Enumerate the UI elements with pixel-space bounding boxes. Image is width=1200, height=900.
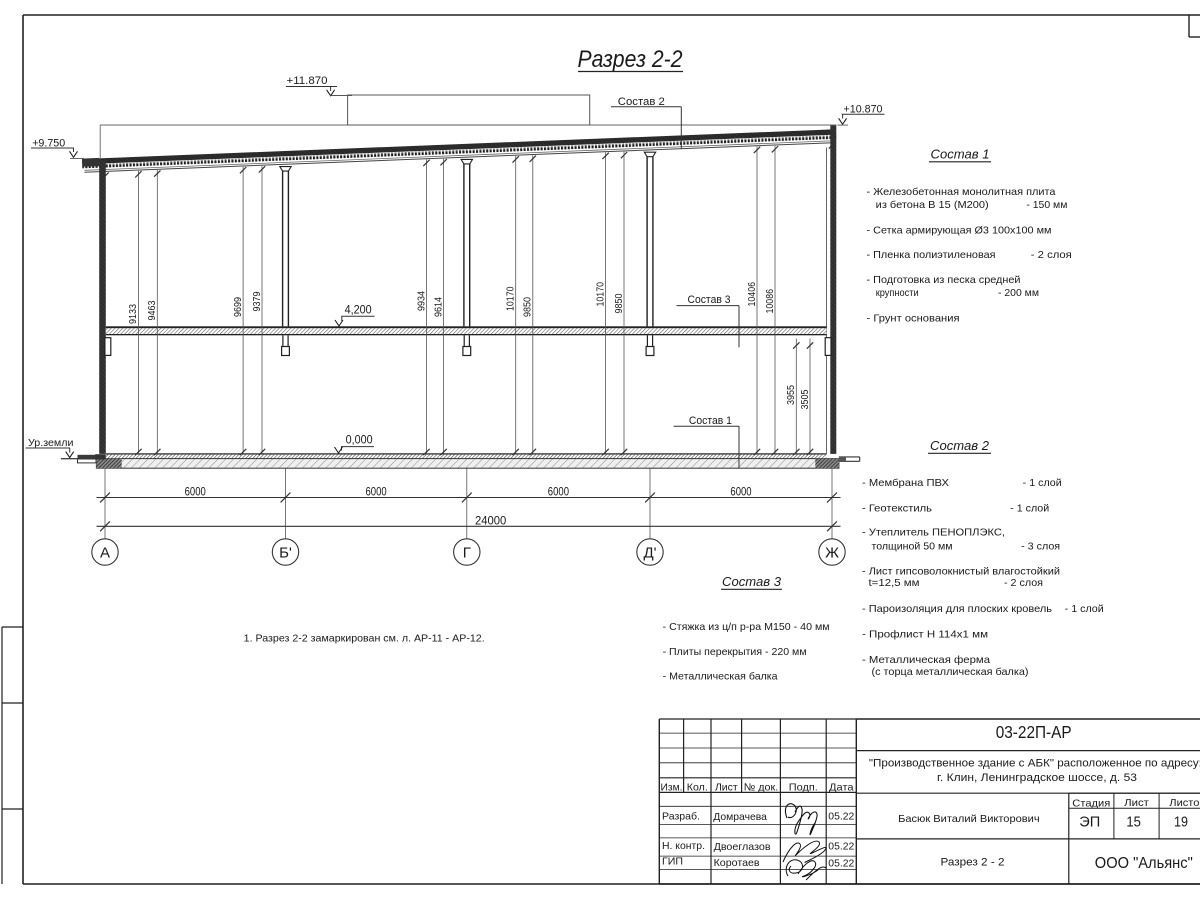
svg-text:9133: 9133 <box>127 304 139 324</box>
svg-text:Лист: Лист <box>1124 797 1149 809</box>
svg-text:- Пароизоляция для плоских кро: - Пароизоляция для плоских кровель <box>862 603 1053 615</box>
svg-text:№ док.: № док. <box>744 781 778 793</box>
svg-text:9699: 9699 <box>232 297 244 317</box>
svg-text:ООО "Альянс": ООО "Альянс" <box>1095 855 1193 872</box>
svg-text:- Лист гипсоволокнистый влагос: - Лист гипсоволокнистый влагостойкий <box>862 566 1060 578</box>
svg-text:- Металлическая балка: - Металлическая балка <box>663 671 778 683</box>
svg-text:Состав 3: Состав 3 <box>688 294 731 306</box>
svg-text:Состав 2: Состав 2 <box>930 439 989 453</box>
svg-text:Домрачева: Домрачева <box>713 811 767 823</box>
svg-text:15: 15 <box>1126 814 1141 831</box>
svg-text:"Производственное здание с АБК: "Производственное здание с АБК" располож… <box>869 758 1200 770</box>
svg-text:- Геотекстиль: - Геотекстиль <box>862 502 933 514</box>
svg-text:- 3 слоя: - 3 слоя <box>1021 540 1060 552</box>
svg-text:05.22: 05.22 <box>828 858 854 870</box>
svg-text:Стадия: Стадия <box>1072 798 1110 810</box>
svg-text:Подп.: Подп. <box>789 781 818 793</box>
svg-text:- 2 слоя: - 2 слоя <box>1004 577 1043 589</box>
svg-text:3505: 3505 <box>799 389 811 409</box>
svg-text:(с торца металлическая балка): (с торца металлическая балка) <box>872 666 1029 678</box>
svg-text:Состав 3: Состав 3 <box>722 575 781 589</box>
svg-text:Б': Б' <box>279 544 292 561</box>
svg-text:- 2 слоя: - 2 слоя <box>1031 249 1072 261</box>
svg-text:- Подготовка из песка средней: - Подготовка из песка средней <box>867 274 1021 286</box>
svg-text:Разрез 2 - 2: Разрез 2 - 2 <box>941 857 1005 869</box>
svg-text:24000: 24000 <box>475 516 506 528</box>
svg-text:t=12,5 мм: t=12,5 мм <box>869 577 920 589</box>
svg-text:- Сетка армирующая Ø3 100х100: - Сетка армирующая Ø3 100х100 мм <box>867 224 1052 236</box>
svg-text:Кол.: Кол. <box>687 781 708 793</box>
svg-text:- Плиты перекрытия - 220 мм: - Плиты перекрытия - 220 мм <box>663 646 807 658</box>
svg-text:Состав 2: Состав 2 <box>618 96 665 108</box>
svg-text:- Мембрана ПВХ: - Мембрана ПВХ <box>862 477 949 489</box>
svg-text:Ж: Ж <box>825 544 839 561</box>
svg-text:Разрез 2-2: Разрез 2-2 <box>578 46 683 73</box>
svg-text:ЭП: ЭП <box>1079 814 1100 831</box>
svg-text:9463: 9463 <box>146 300 158 320</box>
svg-text:6000: 6000 <box>548 486 569 498</box>
svg-text:- Пленка полиэтиленовая: - Пленка полиэтиленовая <box>867 249 996 261</box>
svg-text:05.22: 05.22 <box>828 811 854 823</box>
svg-text:1. Разрез 2-2 замаркирован см.: 1. Разрез 2-2 замаркирован см. л. АР-11 … <box>244 632 485 644</box>
svg-text:19: 19 <box>1174 814 1188 831</box>
svg-text:+11.870: +11.870 <box>287 75 328 87</box>
svg-text:Г: Г <box>463 544 471 561</box>
svg-text:- 1 слой: - 1 слой <box>1023 477 1062 489</box>
svg-text:Басюк Виталий Викторович: Басюк Виталий Викторович <box>898 813 1040 825</box>
svg-text:Н. контр.: Н. контр. <box>662 840 705 852</box>
svg-text:- Профлист Н 114х1 мм: - Профлист Н 114х1 мм <box>862 628 988 640</box>
svg-text:г. Клин, Ленинградское шоссе,: г. Клин, Ленинградское шоссе, д. 53 <box>937 772 1137 784</box>
svg-text:Состав 1: Состав 1 <box>931 148 990 162</box>
svg-text:9379: 9379 <box>251 291 263 311</box>
svg-text:9850: 9850 <box>613 293 625 313</box>
svg-text:03-22П-АР: 03-22П-АР <box>996 722 1072 742</box>
svg-text:6000: 6000 <box>366 486 387 498</box>
svg-text:крупности: крупности <box>876 287 919 299</box>
svg-text:10406: 10406 <box>746 282 758 307</box>
svg-text:Листов: Листов <box>1169 797 1200 809</box>
svg-text:Двоеглазов: Двоеглазов <box>714 841 771 853</box>
svg-text:из бетона В 15 (М200): из бетона В 15 (М200) <box>876 199 989 211</box>
svg-text:толщиной 50 мм: толщиной 50 мм <box>872 540 953 552</box>
svg-text:Коротаев: Коротаев <box>714 857 760 869</box>
svg-text:- 1 слой: - 1 слой <box>1010 502 1049 514</box>
svg-text:- Утеплитель ПЕНОПЛЭКС,: - Утеплитель ПЕНОПЛЭКС, <box>862 527 1005 539</box>
svg-text:4,200: 4,200 <box>345 305 372 317</box>
svg-text:Разраб.: Разраб. <box>662 811 700 823</box>
svg-text:Изм.: Изм. <box>661 781 683 793</box>
svg-text:10170: 10170 <box>594 282 606 307</box>
svg-text:6000: 6000 <box>730 486 751 498</box>
svg-text:6000: 6000 <box>185 486 206 498</box>
svg-text:9614: 9614 <box>432 297 444 317</box>
svg-text:9934: 9934 <box>415 291 427 311</box>
svg-text:Дата: Дата <box>829 781 854 793</box>
svg-text:10086: 10086 <box>764 289 776 314</box>
svg-text:- 200 мм: - 200 мм <box>998 287 1039 299</box>
svg-text:- Грунт основания: - Грунт основания <box>867 313 960 325</box>
svg-text:А: А <box>100 544 110 561</box>
svg-text:3955: 3955 <box>785 385 797 405</box>
svg-text:05.22: 05.22 <box>828 841 854 853</box>
svg-text:Д': Д' <box>643 544 656 561</box>
svg-text:- Стяжка из ц/п р-ра М150 - 40: - Стяжка из ц/п р-ра М150 - 40 мм <box>663 621 830 633</box>
svg-text:+10.870: +10.870 <box>844 103 883 115</box>
svg-text:10170: 10170 <box>505 286 517 311</box>
svg-text:- 150 мм: - 150 мм <box>1026 199 1067 211</box>
svg-text:- Металлическая ферма: - Металлическая ферма <box>862 654 990 666</box>
svg-text:Ур.земли: Ур.земли <box>28 437 74 449</box>
svg-text:Лист: Лист <box>715 781 738 793</box>
svg-text:0,000: 0,000 <box>346 435 373 447</box>
svg-text:ГИП: ГИП <box>662 856 683 868</box>
svg-text:Состав 1: Состав 1 <box>689 415 732 427</box>
svg-text:- Железобетонная монолитная п: - Железобетонная монолитная плита <box>867 186 1056 198</box>
svg-text:9850: 9850 <box>522 297 534 317</box>
svg-text:- 1 слой: - 1 слой <box>1065 603 1104 615</box>
